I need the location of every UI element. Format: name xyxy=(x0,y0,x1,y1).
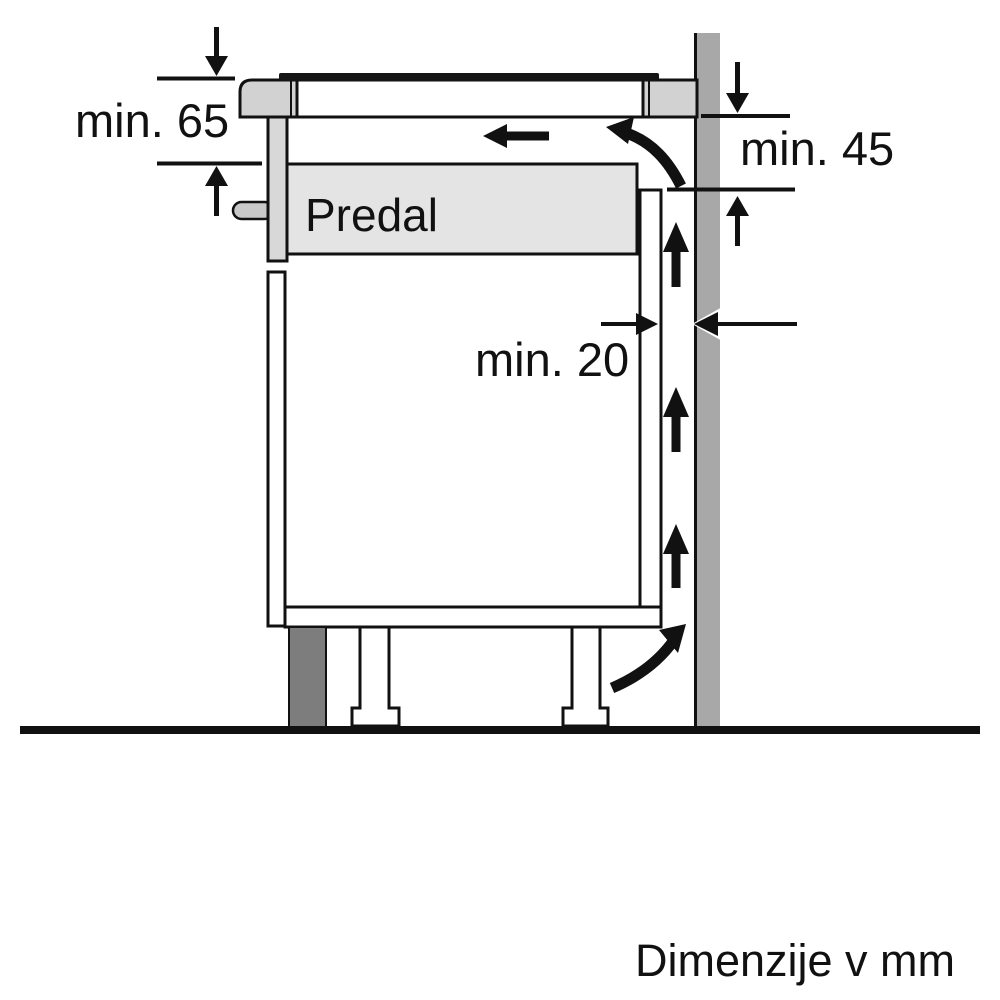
rear-leg xyxy=(563,627,608,726)
dimension-min-20: min. 20 xyxy=(475,306,797,386)
cabinet-bottom-panel xyxy=(285,607,661,627)
worktop-left-section xyxy=(240,80,297,117)
wall xyxy=(696,33,721,728)
dimension-min-65-label: min. 65 xyxy=(75,94,229,147)
dimension-min-20-label: min. 20 xyxy=(475,333,629,386)
footer-note: Dimenzije v mm xyxy=(635,935,955,986)
dimension-min-65: min. 65 xyxy=(75,27,262,216)
hob-glass-top xyxy=(279,73,659,81)
plinth-panel xyxy=(289,627,326,727)
cabinet-door xyxy=(268,272,285,626)
drawer-label: Predal xyxy=(305,189,438,241)
drawer-front-panel xyxy=(268,117,287,261)
drawer-box: Predal xyxy=(287,164,637,254)
hob-body xyxy=(297,80,643,117)
front-leg xyxy=(352,627,399,726)
airflow-up-arrow-1 xyxy=(663,222,689,287)
installation-diagram: Predal xyxy=(0,0,1000,1000)
airflow-curved-arrow-bottom xyxy=(612,624,686,688)
diagram-canvas: Predal xyxy=(0,0,1000,1000)
airflow-up-arrow-2 xyxy=(663,387,689,452)
cabinet-back-panel xyxy=(640,190,661,607)
airflow-left-arrow xyxy=(483,124,549,148)
airflow-up-arrow-3 xyxy=(663,524,689,588)
dimension-min-45-label: min. 45 xyxy=(740,122,894,175)
worktop-right-section xyxy=(643,80,697,117)
